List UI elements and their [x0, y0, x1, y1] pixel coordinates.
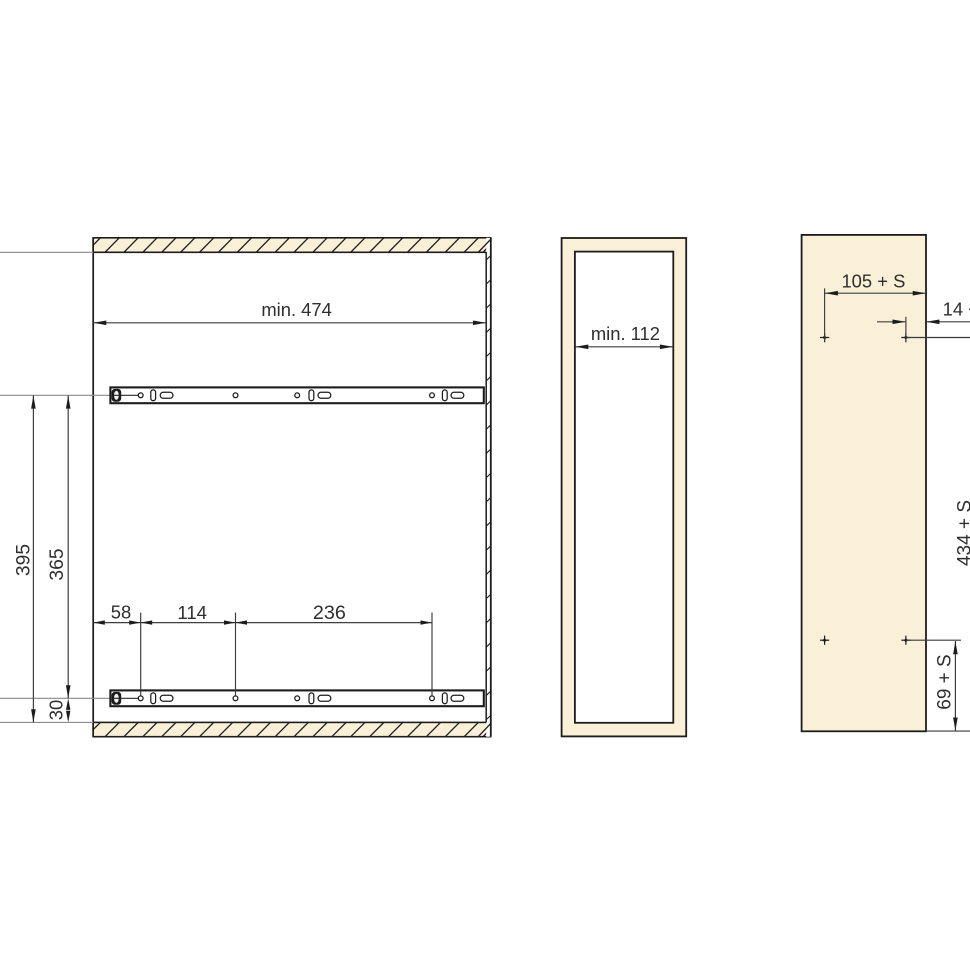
svg-text:14 + S: 14 + S	[943, 299, 970, 320]
svg-text:395: 395	[14, 544, 35, 576]
svg-text:min. 474: min. 474	[261, 299, 332, 320]
svg-text:30: 30	[46, 700, 67, 720]
svg-text:365: 365	[47, 548, 68, 580]
svg-text:105 + S: 105 + S	[841, 270, 905, 291]
svg-text:236: 236	[313, 602, 346, 624]
svg-text:434 + S: 434 + S	[954, 500, 970, 566]
svg-text:69 + S: 69 + S	[935, 654, 956, 709]
svg-text:114: 114	[177, 602, 207, 623]
svg-text:58: 58	[111, 602, 131, 623]
svg-text:min. 112: min. 112	[591, 323, 660, 344]
